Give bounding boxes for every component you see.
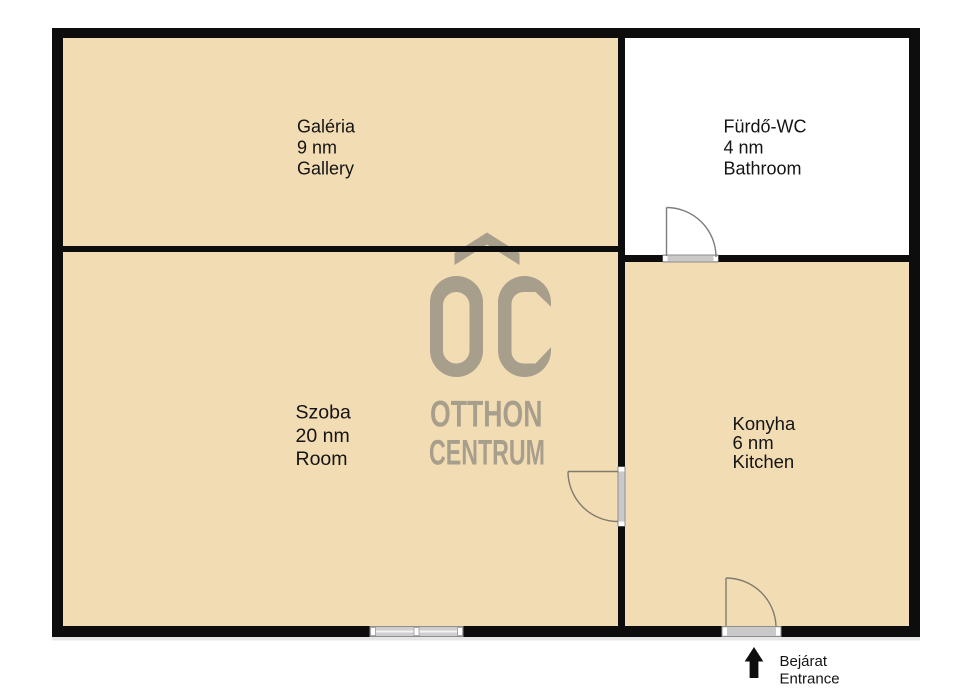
svg-text:OTTHON: OTTHON: [430, 394, 543, 435]
svg-text:BejáratEntrance: BejáratEntrance: [780, 653, 840, 688]
svg-text:CENTRUM: CENTRUM: [429, 434, 545, 473]
svg-text:Szoba20 nmRoom: Szoba20 nmRoom: [296, 402, 351, 471]
